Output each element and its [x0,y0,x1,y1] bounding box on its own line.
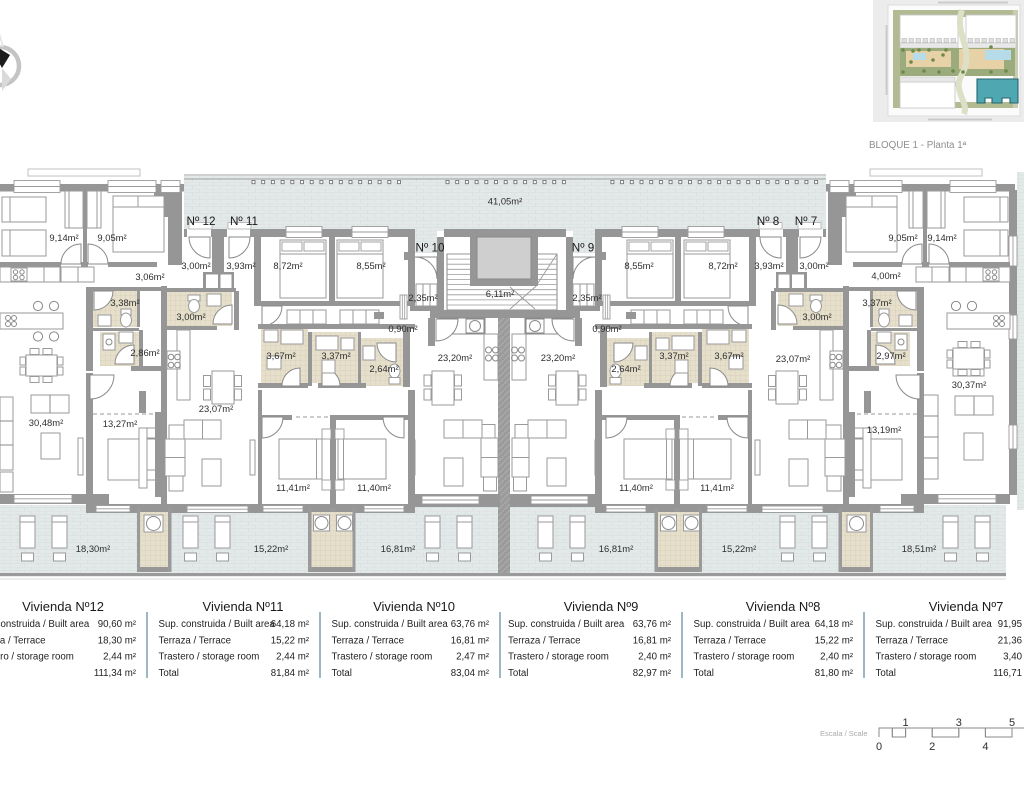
svg-text:2,35m²: 2,35m² [572,292,601,303]
svg-text:Terraza / Terrace: Terraza / Terrace [332,635,405,646]
svg-text:Trastero / storage room: Trastero / storage room [694,652,795,663]
svg-text:30,48m²: 30,48m² [29,417,63,428]
svg-text:0,90m²: 0,90m² [388,323,417,334]
svg-text:23,07m²: 23,07m² [199,403,233,414]
svg-text:4: 4 [982,741,988,753]
svg-text:2,44 m²: 2,44 m² [103,652,137,663]
svg-text:11,41m²: 11,41m² [276,482,310,493]
svg-text:64,18 m²: 64,18 m² [815,619,854,630]
svg-text:2,86m²: 2,86m² [130,347,159,358]
svg-text:Vivienda Nº7: Vivienda Nº7 [929,599,1004,614]
svg-text:Sup. construida / Built area: Sup. construida / Built area [694,619,811,630]
svg-text:3,67m²: 3,67m² [266,350,295,361]
svg-text:4,00m²: 4,00m² [871,270,900,281]
svg-text:Terraza / Terrace: Terraza / Terrace [508,635,581,646]
svg-text:9,14m²: 9,14m² [927,232,956,243]
svg-text:64,18 m²: 64,18 m² [271,619,310,630]
svg-text:81,80 m²: 81,80 m² [815,668,854,679]
svg-text:3,00m²: 3,00m² [802,311,831,322]
svg-text:81,84 m²: 81,84 m² [271,668,310,679]
svg-text:63,76 m²: 63,76 m² [451,619,490,630]
svg-text:Total: Total [508,668,528,679]
svg-text:2: 2 [929,741,935,753]
svg-text:Sup. construida / Built area: Sup. construida / Built area [508,619,625,630]
svg-text:23,07m²: 23,07m² [776,353,810,364]
svg-text:2,40 m²: 2,40 m² [638,652,672,663]
svg-text:Trastero / storage room: Trastero / storage room [0,652,74,663]
svg-text:BLOQUE 1 - Planta 1ª: BLOQUE 1 - Planta 1ª [869,140,967,151]
svg-text:Nº 11: Nº 11 [230,215,258,228]
svg-text:11,40m²: 11,40m² [357,482,391,493]
svg-text:0: 0 [876,741,882,753]
svg-text:13,27m²: 13,27m² [103,418,137,429]
svg-text:18,30 m²: 18,30 m² [98,635,137,646]
svg-text:Nº 8: Nº 8 [757,215,779,228]
svg-text:13,19m²: 13,19m² [867,424,901,435]
svg-text:2,64m²: 2,64m² [611,363,640,374]
svg-text:Escala / Scale: Escala / Scale [820,729,868,738]
svg-text:1: 1 [903,717,909,729]
svg-text:30,37m²: 30,37m² [952,379,986,390]
svg-text:8,55m²: 8,55m² [624,260,653,271]
svg-text:9,14m²: 9,14m² [49,232,78,243]
svg-text:2,35m²: 2,35m² [408,292,437,303]
svg-text:16,81m²: 16,81m² [381,543,415,554]
svg-text:23,20m²: 23,20m² [438,352,472,363]
svg-text:3,37m²: 3,37m² [659,350,688,361]
svg-text:2,64m²: 2,64m² [369,363,398,374]
svg-text:6,11m²: 6,11m² [486,288,514,299]
svg-text:3,06m²: 3,06m² [135,271,164,282]
svg-text:3,40 m²: 3,40 m² [1003,652,1024,663]
svg-text:2,44 m²: 2,44 m² [276,652,310,663]
svg-text:18,51m²: 18,51m² [902,543,936,554]
svg-text:Vivienda Nº8: Vivienda Nº8 [746,599,821,614]
svg-text:Terraza / Terrace: Terraza / Terrace [0,635,46,646]
svg-text:2,40 m²: 2,40 m² [820,652,854,663]
svg-text:5: 5 [1009,717,1015,729]
svg-text:Sup. construida / Built area: Sup. construida / Built area [876,619,993,630]
svg-text:8,55m²: 8,55m² [356,260,385,271]
svg-text:15,22m²: 15,22m² [722,543,756,554]
svg-text:Trastero / storage room: Trastero / storage room [876,652,977,663]
svg-text:111,34 m²: 111,34 m² [94,668,137,679]
svg-text:83,04 m²: 83,04 m² [451,668,490,679]
svg-text:18,30m²: 18,30m² [76,543,110,554]
svg-text:91,95 m²: 91,95 m² [998,619,1024,630]
svg-text:15,22 m²: 15,22 m² [271,635,310,646]
svg-text:Sup. construida / Built area: Sup. construida / Built area [159,619,276,630]
svg-text:82,97 m²: 82,97 m² [633,668,672,679]
svg-text:3,00m²: 3,00m² [176,311,205,322]
svg-text:2,97m²: 2,97m² [876,350,905,361]
svg-text:Vivienda Nº10: Vivienda Nº10 [373,599,455,614]
svg-text:16,81 m²: 16,81 m² [451,635,490,646]
svg-text:3,37m²: 3,37m² [321,350,350,361]
svg-text:Trastero / storage room: Trastero / storage room [508,652,609,663]
svg-text:8,72m²: 8,72m² [273,260,302,271]
svg-text:Vivienda Nº11: Vivienda Nº11 [203,599,284,614]
svg-text:11,40m²: 11,40m² [619,482,653,493]
svg-text:Sup. construida / Built area: Sup. construida / Built area [332,619,449,630]
svg-text:Vivienda Nº9: Vivienda Nº9 [564,599,639,614]
svg-text:Nº 9: Nº 9 [572,242,594,255]
svg-text:3,93m²: 3,93m² [226,260,255,271]
svg-text:63,76 m²: 63,76 m² [633,619,672,630]
svg-text:21,36 m²: 21,36 m² [998,635,1024,646]
svg-text:Total: Total [694,668,714,679]
svg-text:3,00m²: 3,00m² [181,260,210,271]
svg-text:90,60 m²: 90,60 m² [98,619,137,630]
svg-text:3,37m²: 3,37m² [862,297,891,308]
svg-text:Total: Total [159,668,179,679]
svg-text:Nº 7: Nº 7 [795,215,817,228]
svg-text:Nº 10: Nº 10 [416,242,445,255]
svg-text:8,72m²: 8,72m² [708,260,737,271]
svg-text:Terraza / Terrace: Terraza / Terrace [694,635,767,646]
svg-text:41,05m²: 41,05m² [488,196,522,207]
svg-text:Terraza / Terrace: Terraza / Terrace [876,635,949,646]
svg-text:Trastero / storage room: Trastero / storage room [332,652,433,663]
svg-text:23,20m²: 23,20m² [541,352,575,363]
svg-text:0,90m²: 0,90m² [592,323,621,334]
svg-text:3,93m²: 3,93m² [754,260,783,271]
svg-text:15,22 m²: 15,22 m² [815,635,854,646]
svg-text:116,71 m²: 116,71 m² [993,668,1024,679]
svg-text:Sup. construida / Built area: Sup. construida / Built area [0,619,90,630]
svg-text:Nº 12: Nº 12 [187,215,216,228]
svg-text:16,81 m²: 16,81 m² [633,635,672,646]
svg-text:Total: Total [332,668,352,679]
svg-text:15,22m²: 15,22m² [254,543,288,554]
svg-text:16,81m²: 16,81m² [599,543,633,554]
svg-text:2,47 m²: 2,47 m² [456,652,490,663]
svg-text:3: 3 [956,717,962,729]
svg-text:Terraza / Terrace: Terraza / Terrace [159,635,232,646]
svg-text:3,67m²: 3,67m² [714,350,743,361]
svg-text:Total: Total [876,668,896,679]
svg-text:9,05m²: 9,05m² [97,232,126,243]
svg-text:Vivienda Nº12: Vivienda Nº12 [22,599,104,614]
svg-text:9,05m²: 9,05m² [888,232,917,243]
svg-text:3,00m²: 3,00m² [799,260,828,271]
svg-text:3,38m²: 3,38m² [110,297,139,308]
svg-text:Trastero / storage room: Trastero / storage room [159,652,260,663]
svg-text:11,41m²: 11,41m² [700,482,734,493]
